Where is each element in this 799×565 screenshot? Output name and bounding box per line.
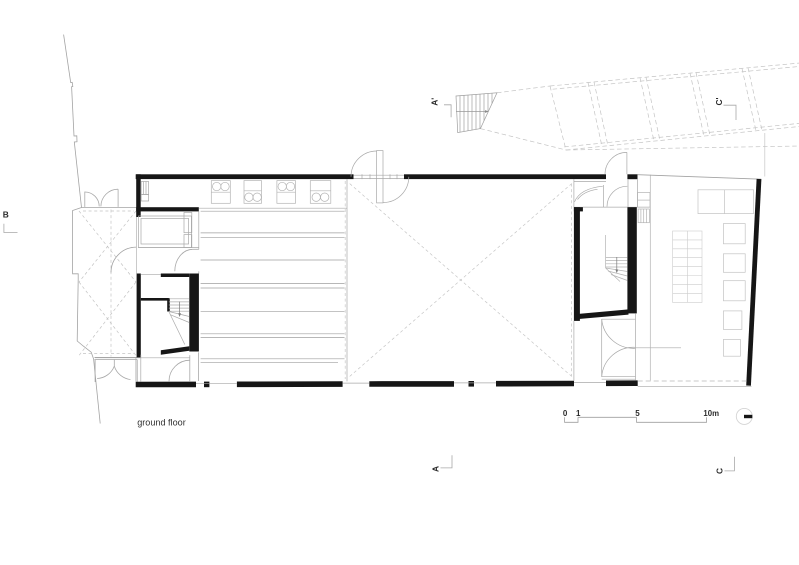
svg-text:0: 0 xyxy=(563,409,568,418)
svg-text:10m: 10m xyxy=(703,409,719,418)
svg-text:1: 1 xyxy=(576,409,581,418)
svg-text:A: A xyxy=(430,466,440,472)
svg-text:B: B xyxy=(3,210,9,220)
svg-text:ground floor: ground floor xyxy=(137,418,186,428)
svg-text:A': A' xyxy=(430,98,440,106)
svg-text:C: C xyxy=(714,468,724,474)
svg-text:5: 5 xyxy=(635,409,640,418)
svg-text:C': C' xyxy=(714,97,724,105)
